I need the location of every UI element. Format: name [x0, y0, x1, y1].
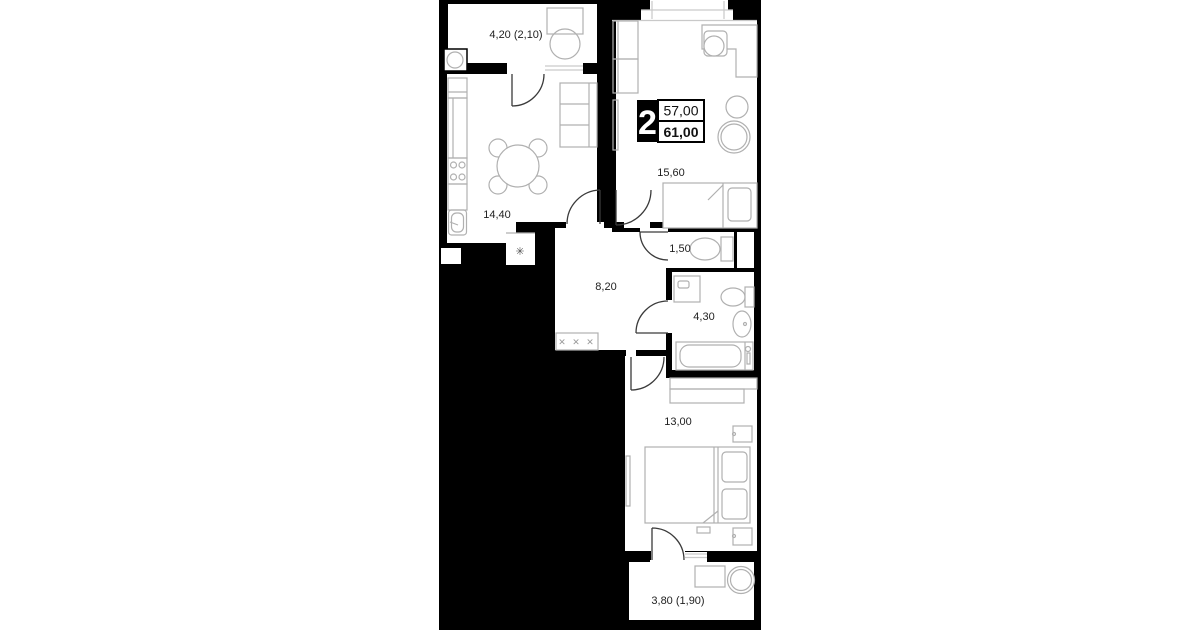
opening-bedroom-door	[626, 348, 636, 358]
floor-plan: ✳ ✕ ✕ ✕ 4,20 (2,10) 14,40 15,60 1,50 8,2…	[0, 0, 1201, 630]
desk-chair-seat	[704, 36, 724, 56]
unit-badge-area-top: 57,00	[663, 103, 698, 119]
label-balcony-top: 4,20 (2,10)	[489, 29, 542, 41]
opening-bathroom-door	[666, 300, 672, 333]
duct-shaft	[737, 232, 754, 268]
balcony-doorway-strip	[507, 63, 583, 74]
dining-table-icon	[497, 145, 539, 187]
wall-stub-right	[650, 222, 663, 228]
unit-badge: 2 57,00 61,00	[637, 100, 704, 142]
room-balcony-bottom	[628, 559, 755, 621]
wall-balcony-left	[618, 551, 650, 562]
opening-kitchen-door	[566, 222, 604, 228]
label-bedroom: 13,00	[664, 416, 692, 428]
wall-kitchen-hall	[516, 222, 566, 228]
label-balcony-bottom: 3,80 (1,90)	[651, 595, 704, 607]
floor-plan-canvas: ✳ ✕ ✕ ✕ 4,20 (2,10) 14,40 15,60 1,50 8,2…	[0, 0, 1201, 630]
wardrobe-hanger-icons: ✕ ✕ ✕	[558, 337, 596, 347]
bay-window-step2	[641, 10, 733, 20]
unit-badge-area-bottom: 61,00	[663, 124, 698, 140]
wall-kitchen-living	[604, 0, 616, 228]
opening-balcony-window	[685, 552, 707, 560]
label-living-room: 15,60	[657, 167, 685, 179]
label-bathroom: 4,30	[693, 311, 714, 323]
bed-icon	[645, 447, 750, 523]
bay-window-step1	[650, 0, 728, 10]
radiator-icon: ✳	[515, 246, 524, 258]
label-kitchen: 14,40	[483, 209, 511, 221]
opening-balcony-door	[651, 551, 685, 560]
label-hallway: 8,20	[595, 281, 616, 293]
unit-badge-rooms-count: 2	[638, 104, 657, 142]
wall-balcony-right	[707, 551, 757, 562]
wall-toilet-top	[612, 228, 757, 232]
shaft-box	[441, 248, 461, 264]
label-toilet: 1,50	[669, 243, 690, 255]
